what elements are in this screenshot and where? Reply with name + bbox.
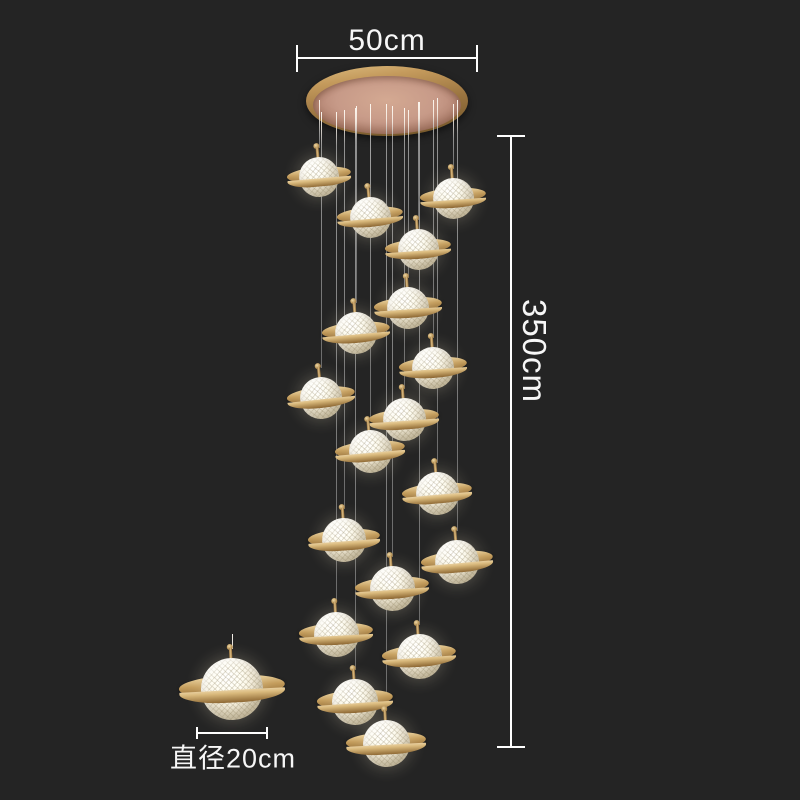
height-dimension-tick-top bbox=[497, 135, 525, 137]
pendant-light bbox=[383, 212, 453, 277]
canopy-width-label: 50cm bbox=[348, 24, 425, 58]
detail-pendant-light bbox=[177, 641, 287, 728]
diameter-dimension-line bbox=[197, 732, 267, 734]
pendant-glass-globe bbox=[396, 227, 440, 271]
pendant-glass-globe bbox=[414, 470, 461, 517]
width-dimension-line bbox=[297, 57, 477, 59]
pendant-stem bbox=[333, 601, 337, 612]
pendant-glass-globe bbox=[361, 718, 410, 767]
pendant-glass-globe bbox=[347, 428, 394, 475]
suspension-wire bbox=[319, 100, 320, 148]
pendant-light bbox=[399, 455, 474, 524]
diameter-dimension-tick-left bbox=[196, 727, 198, 739]
width-dimension-tick-left bbox=[296, 45, 298, 72]
pendant-stem bbox=[383, 709, 387, 720]
height-dimension-line bbox=[510, 136, 512, 747]
pendant-light bbox=[297, 596, 374, 665]
pendant-glass-globe bbox=[368, 564, 416, 612]
pendant-light bbox=[332, 413, 407, 482]
diameter-dimension-tick-right bbox=[266, 727, 268, 739]
product-image: 50cm 350cm 直径20cm bbox=[0, 0, 800, 800]
pendant-glass-globe bbox=[395, 632, 443, 680]
suspension-wire bbox=[370, 104, 371, 421]
width-dimension-tick-right bbox=[476, 45, 478, 72]
suspension-wire bbox=[453, 104, 454, 169]
pendant-diameter-label: 直径20cm bbox=[170, 737, 296, 776]
pendant-light bbox=[418, 523, 495, 593]
pendant-glass-globe bbox=[386, 286, 431, 331]
pendant-glass-globe bbox=[312, 610, 359, 657]
drop-height-label: 350cm bbox=[515, 299, 553, 403]
pendant-light bbox=[344, 703, 427, 774]
height-dimension-tick-bottom bbox=[497, 746, 525, 748]
pendant-light bbox=[319, 295, 392, 363]
